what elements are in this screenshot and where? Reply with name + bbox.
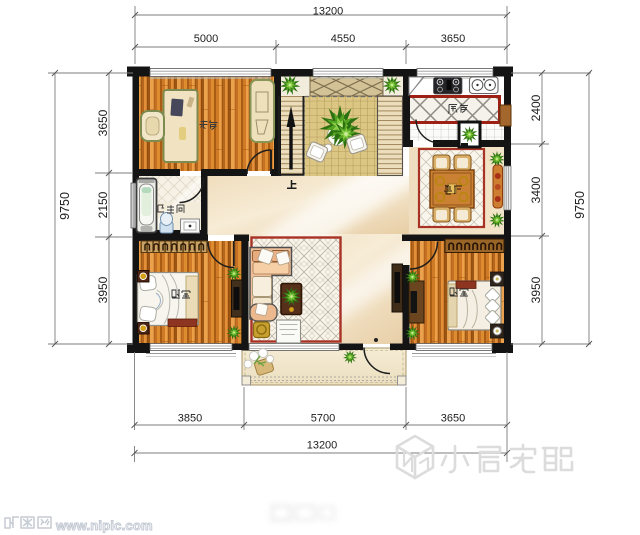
svg-text:2150: 2150: [96, 191, 110, 218]
svg-text:3650: 3650: [96, 109, 110, 136]
svg-text:3400: 3400: [529, 176, 543, 203]
svg-text:www.nipic.com: www.nipic.com: [55, 518, 153, 533]
svg-text:3950: 3950: [96, 276, 110, 303]
svg-text:13200: 13200: [313, 6, 344, 18]
svg-text:3850: 3850: [178, 413, 202, 425]
svg-text:5700: 5700: [311, 413, 335, 425]
svg-text:3950: 3950: [529, 276, 543, 303]
svg-text:13200: 13200: [307, 440, 338, 452]
svg-text:2400: 2400: [529, 94, 543, 121]
svg-text:3650: 3650: [441, 413, 465, 425]
svg-text:4550: 4550: [331, 33, 355, 45]
svg-text:9750: 9750: [573, 191, 587, 219]
svg-text:3650: 3650: [441, 33, 465, 45]
svg-text:9750: 9750: [58, 192, 72, 220]
svg-text:5000: 5000: [194, 33, 218, 45]
